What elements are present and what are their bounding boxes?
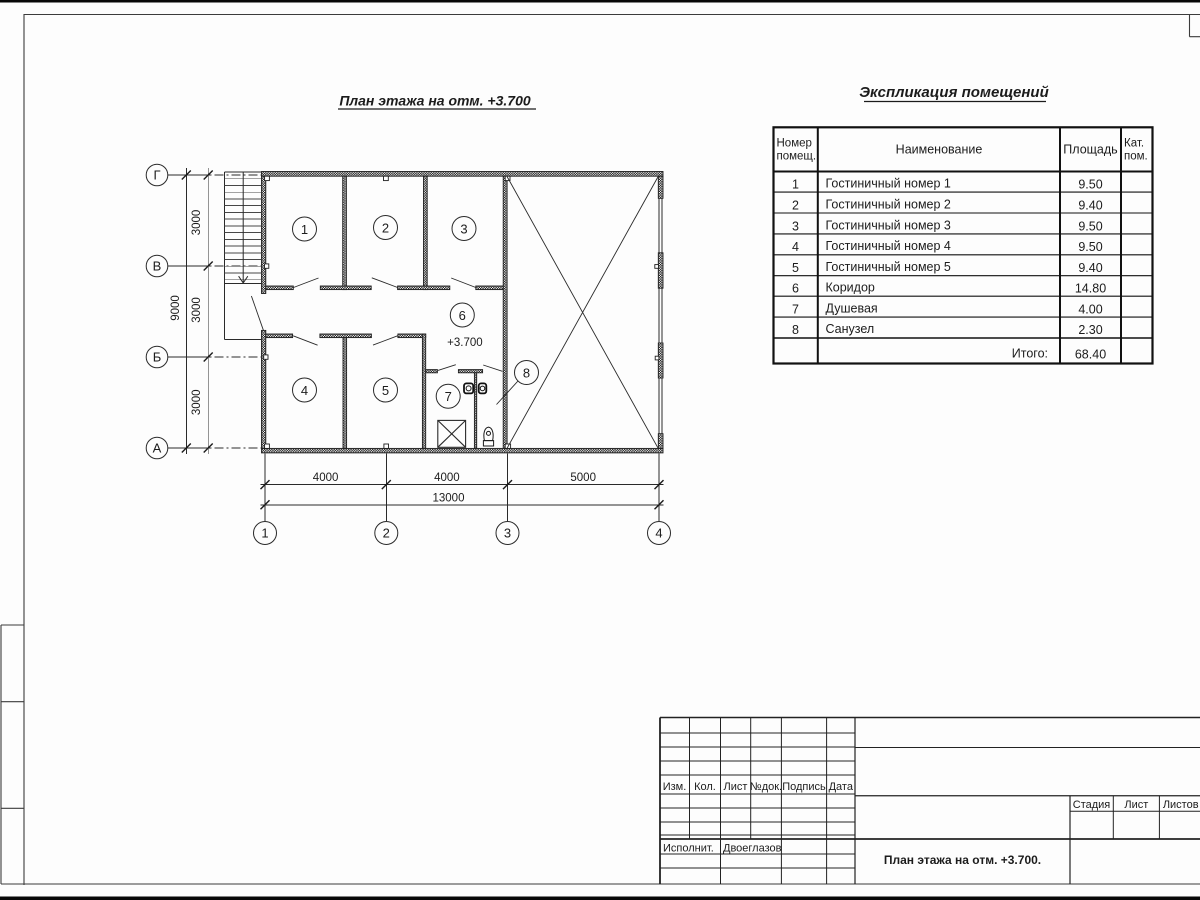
svg-text:7: 7: [445, 389, 452, 404]
svg-text:Исполнит.: Исполнит.: [663, 843, 714, 855]
svg-text:Душевая: Душевая: [826, 301, 878, 315]
svg-text:5: 5: [792, 261, 799, 275]
svg-text:Гостиничный номер 4: Гостиничный номер 4: [826, 239, 951, 253]
svg-text:2: 2: [792, 198, 799, 212]
svg-text:3: 3: [792, 219, 799, 233]
svg-text:8: 8: [792, 323, 799, 337]
svg-text:4000: 4000: [434, 472, 460, 484]
svg-text:5: 5: [382, 383, 389, 398]
svg-text:помещ.: помещ.: [777, 151, 817, 163]
svg-text:Коридор: Коридор: [826, 280, 875, 294]
svg-text:4: 4: [301, 383, 308, 398]
svg-text:Листов: Листов: [1163, 799, 1199, 811]
svg-text:Экспликация помещений: Экспликация помещений: [859, 84, 1049, 101]
svg-text:4: 4: [655, 526, 662, 541]
svg-text:Санузел: Санузел: [826, 322, 875, 336]
svg-text:9.50: 9.50: [1078, 219, 1102, 233]
svg-text:Номер: Номер: [777, 138, 812, 150]
svg-text:Итого:: Итого:: [1012, 347, 1048, 361]
svg-text:Гостиничный номер 1: Гостиничный номер 1: [826, 177, 951, 191]
svg-text:Кат.: Кат.: [1124, 138, 1144, 150]
svg-text:3000: 3000: [191, 210, 203, 236]
svg-text:3: 3: [504, 526, 511, 541]
svg-text:9000: 9000: [170, 295, 182, 321]
svg-text:14.80: 14.80: [1075, 281, 1106, 295]
svg-text:9.40: 9.40: [1078, 198, 1102, 212]
svg-text:пом.: пом.: [1124, 151, 1148, 163]
svg-text:Гостиничный номер 2: Гостиничный номер 2: [826, 197, 951, 211]
svg-text:1: 1: [792, 178, 799, 192]
svg-text:Г: Г: [153, 168, 160, 183]
svg-text:Наименование: Наименование: [896, 143, 983, 157]
svg-text:9.40: 9.40: [1078, 261, 1102, 275]
svg-text:5000: 5000: [570, 472, 596, 484]
svg-text:7: 7: [792, 302, 799, 316]
svg-text:Лист: Лист: [1124, 799, 1148, 811]
svg-text:Дата: Дата: [829, 781, 854, 793]
svg-text:4: 4: [792, 240, 799, 254]
svg-text:План этажа на отм. +3.700.: План этажа на отм. +3.700.: [884, 853, 1041, 867]
svg-text:Изм.: Изм.: [663, 781, 687, 793]
svg-text:№док.: №док.: [750, 781, 782, 793]
svg-text:+3.700: +3.700: [447, 337, 483, 349]
svg-text:Двоеглазов: Двоеглазов: [723, 843, 782, 855]
svg-text:68.40: 68.40: [1075, 348, 1106, 362]
svg-text:Стадия: Стадия: [1073, 799, 1111, 811]
svg-text:13000: 13000: [433, 492, 465, 504]
svg-text:Подпись: Подпись: [782, 781, 826, 793]
svg-text:8: 8: [523, 365, 530, 380]
svg-text:1: 1: [301, 222, 308, 237]
svg-text:Б: Б: [153, 350, 162, 365]
svg-text:Гостиничный номер 5: Гостиничный номер 5: [826, 260, 951, 274]
svg-text:Гостиничный номер 3: Гостиничный номер 3: [826, 218, 951, 232]
svg-text:Площадь: Площадь: [1063, 143, 1117, 157]
svg-text:4.00: 4.00: [1078, 302, 1102, 316]
svg-text:2: 2: [383, 526, 390, 541]
svg-text:В: В: [153, 259, 162, 274]
svg-text:1: 1: [261, 526, 268, 541]
svg-text:А: А: [153, 441, 162, 456]
svg-text:План этажа на отм. +3.700: План этажа на отм. +3.700: [339, 93, 531, 109]
svg-text:9.50: 9.50: [1078, 178, 1102, 192]
svg-text:9.50: 9.50: [1078, 240, 1102, 254]
svg-text:6: 6: [459, 308, 466, 323]
svg-text:6: 6: [792, 281, 799, 295]
svg-text:3000: 3000: [191, 390, 203, 416]
svg-text:2.30: 2.30: [1078, 323, 1102, 337]
svg-text:3000: 3000: [191, 297, 203, 323]
svg-text:2: 2: [382, 220, 389, 235]
svg-text:3: 3: [460, 221, 467, 236]
svg-text:Кол.: Кол.: [694, 781, 716, 793]
svg-text:4000: 4000: [313, 472, 339, 484]
svg-text:Лист: Лист: [724, 781, 748, 793]
